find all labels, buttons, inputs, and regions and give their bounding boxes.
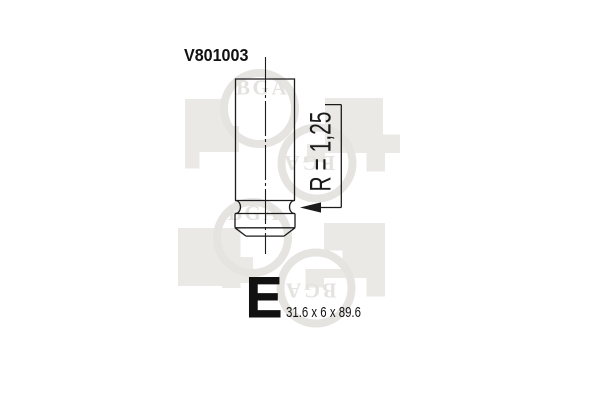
svg-text:E: E xyxy=(246,265,282,330)
svg-text:BGA: BGA xyxy=(283,279,336,303)
svg-text:31.6 x 6 x 89.6: 31.6 x 6 x 89.6 xyxy=(286,304,361,321)
svg-text:V801003: V801003 xyxy=(184,45,248,65)
svg-text:R = 1,25: R = 1,25 xyxy=(305,112,337,192)
